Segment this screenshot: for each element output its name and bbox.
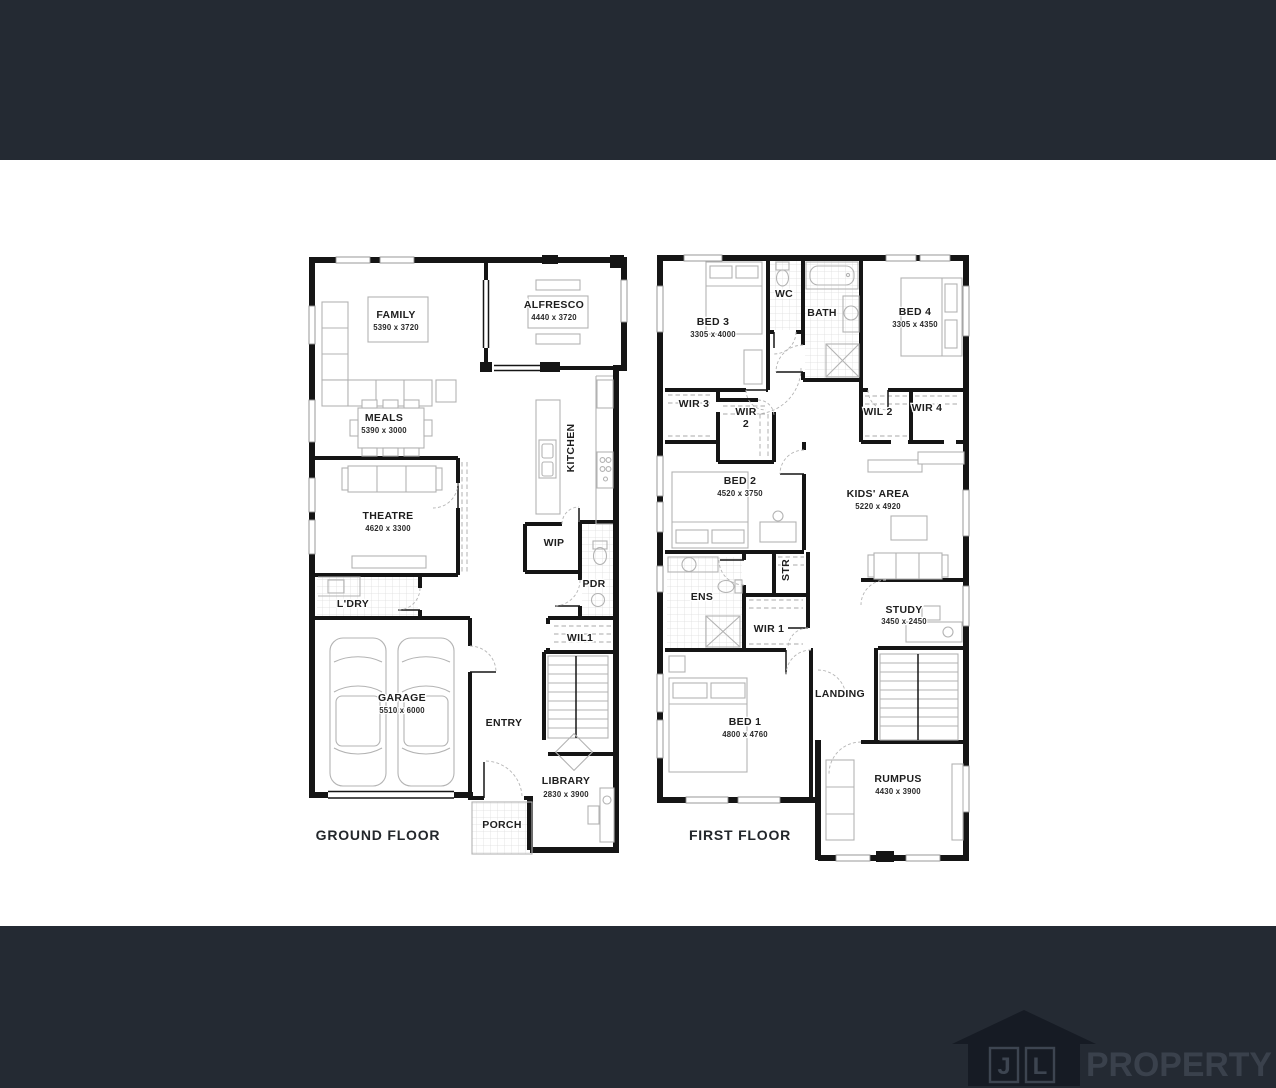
room-label-pdr: PDR (582, 578, 605, 590)
brand-logo: J L PROPERTY (948, 1008, 1276, 1088)
logo-letter-j: J (997, 1053, 1010, 1080)
room-dims-study: 3450 x 2450 (881, 617, 927, 626)
first-floor-plan: BED 3 3305 x 4000 WC BATH BED 4 3305 x 4… (656, 250, 971, 865)
room-label-alfresco: ALFRESCO (524, 299, 584, 311)
house-icon (952, 1010, 1096, 1086)
room-label-bed3: BED 3 (697, 316, 729, 328)
rumpus-sofa (826, 760, 963, 840)
logo-letter-l: L (1033, 1053, 1048, 1080)
room-label-bed1: BED 1 (729, 716, 761, 728)
room-dims-kids: 5220 x 4920 (855, 502, 901, 511)
room-label-wir4: WIR 4 (912, 402, 943, 414)
room-dims-theatre: 4620 x 3300 (365, 524, 411, 533)
room-label-wir2: WIR (735, 406, 756, 418)
room-dims-bed1: 4800 x 4760 (722, 730, 768, 739)
room-dims-bed3: 3305 x 4000 (690, 330, 736, 339)
room-label-theatre: THEATRE (363, 510, 414, 522)
powder-tiles (582, 524, 614, 616)
top-frame-bar (0, 0, 1276, 160)
bath-tiles (805, 260, 859, 378)
room-label-kitchen: KITCHEN (565, 424, 577, 473)
room-label-wir1: WIR 1 (754, 623, 785, 635)
kitchen-island (536, 400, 560, 514)
stairs-icon (548, 656, 608, 738)
ground-floor-title: GROUND FLOOR (316, 827, 441, 843)
room-dims-bed4: 3305 x 4350 (892, 320, 938, 329)
logo-word: PROPERTY (1086, 1046, 1272, 1084)
room-label-bed2: BED 2 (724, 475, 756, 487)
room-label-porch: PORCH (482, 819, 521, 831)
room-label-library: LIBRARY (542, 775, 590, 787)
ground-floor-plan: FAMILY 5390 x 3720 ALFRESCO 4440 x 3720 … (308, 250, 628, 862)
alfresco-table (528, 280, 588, 344)
room-label-study: STUDY (885, 604, 922, 616)
room-label-entry: ENTRY (486, 717, 523, 729)
room-label-ens: ENS (691, 591, 714, 603)
door-swings (398, 483, 580, 798)
room-label-garage: GARAGE (378, 692, 426, 704)
first-floor-title: FIRST FLOOR (689, 827, 791, 843)
room-label-wir2-line2: 2 (743, 418, 749, 430)
room-label-bath: BATH (807, 307, 837, 319)
room-dims-meals: 5390 x 3000 (361, 426, 407, 435)
room-dims-rumpus: 4430 x 3900 (875, 787, 921, 796)
room-label-wc: WC (775, 288, 793, 300)
room-label-family: FAMILY (376, 309, 415, 321)
page: FAMILY 5390 x 3720 ALFRESCO 4440 x 3720 … (0, 0, 1276, 1088)
cavity-slider-dashes (462, 462, 467, 572)
room-label-str: STR (780, 559, 792, 581)
car-icon (330, 638, 386, 786)
room-label-ldry: L'DRY (337, 598, 369, 610)
room-label-kids: KIDS' AREA (847, 488, 910, 500)
room-label-bed4: BED 4 (899, 306, 931, 318)
room-label-wir3: WIR 3 (679, 398, 710, 410)
room-dims-family: 5390 x 3720 (373, 323, 419, 332)
room-dims-bed2: 4520 x 3750 (717, 489, 763, 498)
room-dims-library: 2830 x 3900 (543, 790, 589, 799)
room-label-rumpus: RUMPUS (874, 773, 921, 785)
room-label-meals: MEALS (365, 412, 403, 424)
room-dims-alfresco: 4440 x 3720 (531, 313, 577, 322)
room-label-landing: LANDING (815, 688, 865, 700)
kids-table (891, 516, 927, 540)
room-label-wil1: WIL1 (567, 632, 593, 644)
library-desk (588, 788, 614, 842)
room-dims-garage: 5510 x 6000 (379, 706, 425, 715)
bed1-bed-icon (669, 656, 747, 772)
kitchen-bench (596, 376, 613, 524)
stairs-icon (880, 654, 958, 740)
room-label-wil2: WIL 2 (863, 406, 892, 418)
room-label-wip: WIP (544, 537, 565, 549)
